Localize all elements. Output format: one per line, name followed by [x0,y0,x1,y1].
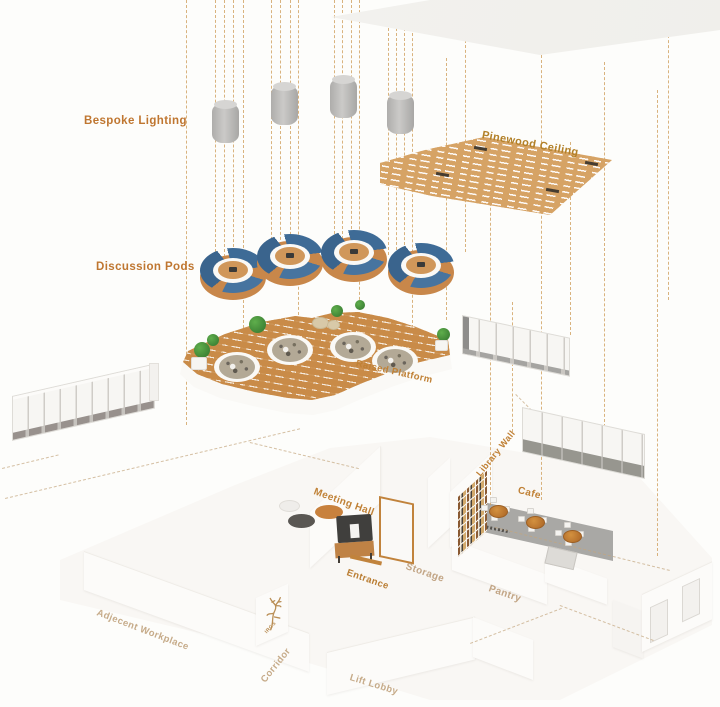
discussion-pod [321,230,387,282]
projection-line-vertical [668,30,669,300]
cafe-table-group [482,497,512,523]
projection-line-vertical [334,0,335,244]
seating-cluster-furniture [219,355,255,379]
cafe-table-top [563,530,582,543]
label-bespoke-lighting: Bespoke Lighting [84,115,187,127]
projection-line-vertical [351,0,352,244]
cafe-table-group [519,508,549,534]
glass-base-band [13,401,154,440]
entrance-glass-door [379,496,414,564]
glass-base-band [463,348,569,375]
projection-line-vertical [280,0,281,250]
projection-line-vertical [512,302,513,432]
plant-tree [331,305,343,317]
seating-cluster-furniture [335,335,371,359]
cafe-chair [564,522,571,528]
pendant-light [387,94,414,134]
projection-line-vertical [342,0,343,244]
credenza-leg [338,556,340,563]
cafe-chair [527,508,534,514]
planter-pot [435,340,448,351]
pendant-light [330,78,357,118]
door-panel [650,599,668,643]
projection-line-vertical [404,28,405,255]
pod-table [286,253,294,258]
meeting-hall-pouf-gray [288,514,315,528]
cafe-chair [490,497,497,503]
left-glass-partition [12,364,155,441]
pod-table [350,249,358,254]
left-wall-column [149,363,159,401]
cafe-chair [555,530,562,536]
platform-seating-cluster [330,332,376,362]
door-panel [682,578,700,622]
decor-stone [327,320,340,330]
screen-content [350,524,360,539]
projection-line-vertical [290,0,291,250]
pod-table [229,267,237,272]
glass-top-beam [13,365,154,400]
platform-seating-cluster [267,335,313,365]
cafe-chair [481,505,488,511]
right-glass-partition-upper [462,315,570,377]
discussion-pod [388,243,454,295]
cafe-table-top [489,505,508,518]
floor-outline-dashed-line [2,454,59,469]
discussion-pod [257,234,323,286]
meeting-hall-pouf-white [279,500,300,512]
cafe-chair [518,516,525,522]
plant-tree [207,334,219,346]
plant-tree [355,300,365,310]
projection-line-vertical [657,90,658,556]
projection-line-vertical [604,62,605,432]
pod-table [417,262,425,267]
platform-seating-cluster [214,352,260,382]
projection-line-vertical [396,28,397,255]
seating-cluster-furniture [272,338,308,362]
exploded-axonometric-diagram: Bespoke Lighting Discussion Pods Pinewoo… [0,0,720,707]
label-discussion-pods: Discussion Pods [96,261,195,273]
projection-line-vertical [388,28,389,255]
pendant-light [212,103,239,143]
plant-tree [249,316,266,333]
plant-tree [194,342,210,358]
presentation-screen [336,514,373,543]
projection-line-vertical [271,0,272,250]
cafe-table-group [556,522,586,548]
cafe-table-top [526,516,545,529]
planter-pot [191,357,207,370]
pendant-light [271,85,298,125]
